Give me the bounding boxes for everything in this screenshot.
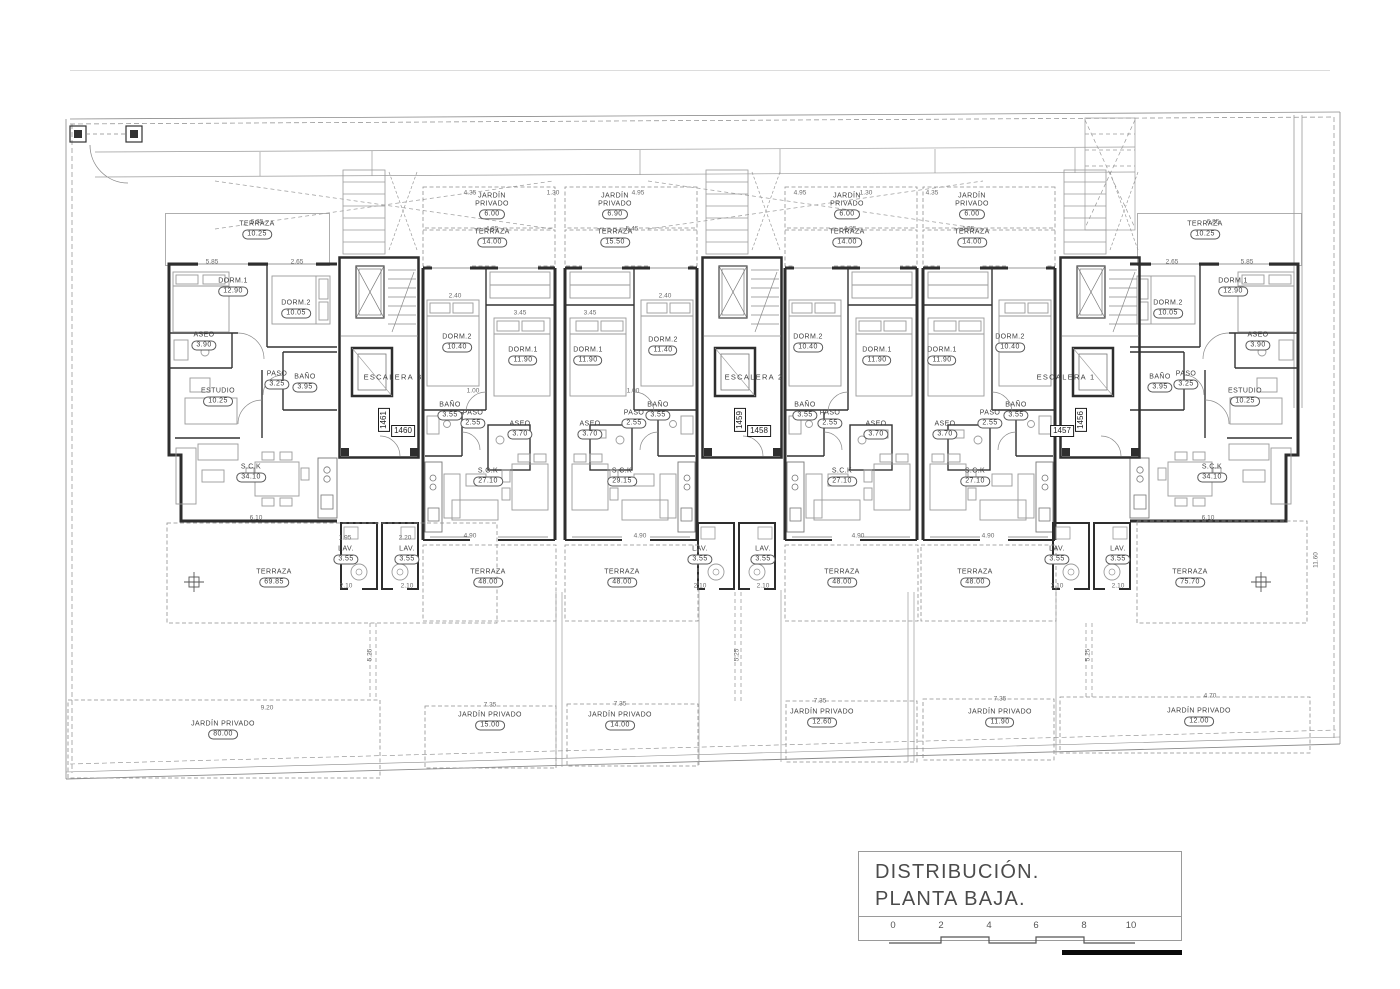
room-name: DORM.2 bbox=[793, 333, 823, 341]
room-name: PASO bbox=[463, 409, 484, 417]
room-label: BAÑO3.55 bbox=[1003, 401, 1028, 420]
room-area-value: 11.90 bbox=[574, 356, 603, 366]
dimension-text: 6.10 bbox=[250, 515, 263, 522]
room-area-value: 15.50 bbox=[600, 238, 630, 248]
scale-tick-6: 6 bbox=[1033, 920, 1038, 931]
dimension-text: 4.90 bbox=[464, 533, 477, 540]
room-name: BAÑO bbox=[1005, 401, 1026, 409]
dimension-text: 6.10 bbox=[1202, 515, 1215, 522]
room-label: BAÑO3.55 bbox=[437, 401, 462, 420]
room-label: ASEO3.70 bbox=[863, 420, 888, 439]
room-name: DORM.1 bbox=[862, 346, 892, 354]
room-name: TERRAZA bbox=[957, 568, 992, 576]
room-label: BAÑO3.95 bbox=[292, 373, 317, 392]
dimension-text: 3.45 bbox=[514, 310, 527, 317]
room-label: BAÑO3.55 bbox=[792, 401, 817, 420]
room-name: JARDÍN PRIVADO bbox=[968, 708, 1032, 716]
room-name: TERRAZA bbox=[597, 228, 632, 236]
room-name: JARDÍN PRIVADO bbox=[790, 708, 854, 716]
dimension-text: 5.25 bbox=[1085, 649, 1092, 662]
room-name: BAÑO bbox=[647, 401, 668, 409]
room-label: PASO3.25 bbox=[264, 370, 289, 389]
room-label: DORM.112.90 bbox=[1218, 277, 1248, 296]
room-area-value: 48.00 bbox=[827, 578, 857, 588]
room-area-value: 6.00 bbox=[834, 210, 859, 220]
room-label: ASEO3.70 bbox=[507, 420, 532, 439]
room-area-value: 2.55 bbox=[621, 419, 646, 429]
room-label: JARDÍN PRIVADO12.60 bbox=[790, 708, 854, 727]
room-area-value: 3.55 bbox=[394, 555, 419, 565]
room-name: ESTUDIO bbox=[1228, 387, 1262, 395]
room-name: PASO bbox=[267, 370, 288, 378]
dimension-text: 2.65 bbox=[291, 259, 304, 266]
room-name: BAÑO bbox=[439, 401, 460, 409]
dimension-text: 5.25 bbox=[367, 649, 374, 662]
room-name: JARDÍN PRIVADO bbox=[823, 192, 871, 208]
scale-tick-10: 10 bbox=[1126, 920, 1137, 931]
scale-tick-8: 8 bbox=[1081, 920, 1086, 931]
room-area-value: 3.55 bbox=[1044, 555, 1069, 565]
room-name: JARDÍN PRIVADO bbox=[458, 711, 522, 719]
room-name: S.C.K bbox=[241, 463, 261, 471]
room-name: S.C.K bbox=[832, 467, 852, 475]
scale-tick-4: 4 bbox=[986, 920, 991, 931]
room-name: S.C.K bbox=[612, 467, 632, 475]
room-label: TERRAZA10.25 bbox=[239, 220, 274, 239]
room-area-value: 3.55 bbox=[333, 555, 358, 565]
room-area-value: 3.70 bbox=[932, 430, 957, 440]
room-area-value: 6.00 bbox=[959, 210, 984, 220]
room-label: ASEO3.70 bbox=[932, 420, 957, 439]
room-area-value: 3.55 bbox=[750, 555, 775, 565]
room-name: JARDÍN PRIVADO bbox=[591, 192, 639, 208]
plot-number: 1461 bbox=[378, 408, 390, 432]
dimension-text: 7.35 bbox=[614, 701, 627, 708]
room-label: DORM.210.05 bbox=[281, 299, 311, 318]
room-area-value: 75.70 bbox=[1175, 578, 1205, 588]
room-name: DORM.1 bbox=[218, 277, 248, 285]
room-name: PASO bbox=[980, 409, 1001, 417]
room-name: LAV. bbox=[338, 545, 354, 553]
room-label: S.C.K34.10 bbox=[236, 463, 266, 482]
room-area-value: 14.00 bbox=[832, 238, 862, 248]
room-label: TERRAZA48.00 bbox=[824, 568, 859, 587]
room-name: ESTUDIO bbox=[201, 387, 235, 395]
room-area-value: 34.10 bbox=[236, 473, 266, 483]
room-area-value: 11.40 bbox=[649, 346, 678, 356]
dimension-text: 2.40 bbox=[449, 293, 462, 300]
dimension-text: 7.35 bbox=[814, 698, 827, 705]
room-label: DORM.210.40 bbox=[442, 333, 472, 352]
dimension-text: 9.20 bbox=[261, 705, 274, 712]
room-area-value: 27.10 bbox=[960, 477, 990, 487]
room-label: TERRAZA14.00 bbox=[829, 228, 864, 247]
room-label: LAV.3.55 bbox=[750, 545, 775, 564]
room-label: TERRAZA48.00 bbox=[604, 568, 639, 587]
room-name: JARDÍN PRIVADO bbox=[588, 711, 652, 719]
dimension-text: 2.10 bbox=[1112, 583, 1125, 590]
room-label: PASO2.55 bbox=[621, 409, 646, 428]
room-name: PASO bbox=[624, 409, 645, 417]
room-label: S.C.K27.10 bbox=[473, 467, 503, 486]
room-area-value: 11.90 bbox=[928, 356, 957, 366]
room-area-value: 2.55 bbox=[977, 419, 1002, 429]
room-name: S.C.K bbox=[965, 467, 985, 475]
floor-plan-page: TERRAZA10.25DORM.112.90DORM.210.05ASEO3.… bbox=[0, 0, 1400, 989]
room-area-value: 3.25 bbox=[1173, 380, 1198, 390]
drawing-title-line1: DISTRIBUCIÓN. bbox=[875, 859, 1165, 886]
room-label: ASEO3.70 bbox=[577, 420, 602, 439]
dimension-text: 2.10 bbox=[757, 583, 770, 590]
room-label: PASO2.55 bbox=[817, 409, 842, 428]
room-area-value: 34.10 bbox=[1197, 473, 1227, 483]
room-area-value: 10.25 bbox=[1230, 397, 1260, 407]
room-label: JARDÍN PRIVADO12.00 bbox=[1167, 707, 1231, 726]
room-name: TERRAZA bbox=[474, 228, 509, 236]
room-name: DORM.2 bbox=[1153, 299, 1183, 307]
room-name: ASEO bbox=[193, 331, 214, 339]
room-area-value: 11.90 bbox=[863, 356, 892, 366]
room-area-value: 3.55 bbox=[792, 411, 817, 421]
room-name: JARDÍN PRIVADO bbox=[191, 720, 255, 728]
scale-tick-0: 0 bbox=[890, 920, 895, 931]
room-area-value: 2.55 bbox=[817, 419, 842, 429]
room-label: JARDÍN PRIVADO15.00 bbox=[458, 711, 522, 730]
room-name: TERRAZA bbox=[1172, 568, 1207, 576]
room-area-value: 10.25 bbox=[203, 397, 233, 407]
room-label: ASEO3.90 bbox=[1245, 331, 1270, 350]
room-label: DORM.210.40 bbox=[995, 333, 1025, 352]
room-name: LAV. bbox=[1049, 545, 1065, 553]
room-label: PASO3.25 bbox=[1173, 370, 1198, 389]
dimension-text: 4.95 bbox=[794, 190, 807, 197]
scale-tick-2: 2 bbox=[938, 920, 943, 931]
room-area-value: 6.00 bbox=[479, 210, 504, 220]
room-label: TERRAZA75.70 bbox=[1172, 568, 1207, 587]
dimension-text: 1.95 bbox=[339, 535, 352, 542]
room-label: ASEO3.90 bbox=[191, 331, 216, 350]
dimension-text: 2.10 bbox=[340, 583, 353, 590]
room-label: ESTUDIO10.25 bbox=[201, 387, 235, 406]
room-area-value: 80.00 bbox=[208, 730, 238, 740]
plot-number: 1460 bbox=[391, 425, 415, 437]
room-area-value: 14.00 bbox=[957, 238, 987, 248]
room-label: LAV.3.55 bbox=[1044, 545, 1069, 564]
room-label: DORM.210.40 bbox=[793, 333, 823, 352]
room-name: DORM.1 bbox=[927, 346, 957, 354]
room-name: BAÑO bbox=[794, 401, 815, 409]
room-label: BAÑO3.55 bbox=[645, 401, 670, 420]
room-name: LAV. bbox=[1110, 545, 1126, 553]
room-name: JARDÍN PRIVADO bbox=[948, 192, 996, 208]
room-area-value: 48.00 bbox=[960, 578, 990, 588]
dimension-text: 1.00 bbox=[627, 388, 640, 395]
room-label: JARDÍN PRIVADO14.00 bbox=[588, 711, 652, 730]
room-area-value: 14.00 bbox=[477, 238, 507, 248]
room-area-value: 12.00 bbox=[1184, 717, 1214, 727]
room-name: DORM.2 bbox=[442, 333, 472, 341]
room-label: DORM.111.90 bbox=[927, 346, 957, 365]
room-name: DORM.1 bbox=[573, 346, 603, 354]
room-name: S.C.K bbox=[1202, 463, 1222, 471]
room-area-value: 3.70 bbox=[507, 430, 532, 440]
room-name: DORM.2 bbox=[281, 299, 311, 307]
room-area-value: 3.90 bbox=[1245, 341, 1270, 351]
room-name: TERRAZA bbox=[824, 568, 859, 576]
title-block: DISTRIBUCIÓN. PLANTA BAJA. 0 2 4 6 8 10 bbox=[858, 851, 1182, 941]
room-area-value: 3.55 bbox=[687, 555, 712, 565]
room-area-value: 27.10 bbox=[827, 477, 857, 487]
room-name: ASEO bbox=[579, 420, 600, 428]
room-name: TERRAZA bbox=[954, 228, 989, 236]
dimension-text: 2.10 bbox=[694, 583, 707, 590]
dimension-text: 5.25 bbox=[734, 649, 741, 662]
dimension-text: 2.10 bbox=[401, 583, 414, 590]
room-name: DORM.2 bbox=[995, 333, 1025, 341]
room-label: DORM.112.90 bbox=[218, 277, 248, 296]
stairwell-label: ESCALERA 2 bbox=[725, 373, 784, 382]
room-name: ASEO bbox=[865, 420, 886, 428]
room-label: JARDÍN PRIVADO6.00 bbox=[468, 192, 516, 219]
dimension-text: 11.60 bbox=[1313, 552, 1320, 568]
room-label: JARDÍN PRIVADO6.00 bbox=[823, 192, 871, 219]
room-label: LAV.3.55 bbox=[687, 545, 712, 564]
room-label: DORM.111.90 bbox=[508, 346, 538, 365]
dimension-text: 2.20 bbox=[399, 535, 412, 542]
dimension-text: 5.85 bbox=[206, 259, 219, 266]
room-name: ASEO bbox=[1247, 331, 1268, 339]
room-label: LAV.3.55 bbox=[1105, 545, 1130, 564]
room-name: DORM.1 bbox=[1218, 277, 1248, 285]
room-label: TERRAZA15.50 bbox=[597, 228, 632, 247]
room-area-value: 3.70 bbox=[577, 430, 602, 440]
room-name: LAV. bbox=[399, 545, 415, 553]
plot-number: 1459 bbox=[734, 408, 746, 432]
room-label: S.C.K29.15 bbox=[607, 467, 637, 486]
room-label: DORM.111.90 bbox=[573, 346, 603, 365]
room-label: JARDÍN PRIVADO6.90 bbox=[591, 192, 639, 219]
room-label: TERRAZA69.85 bbox=[256, 568, 291, 587]
drawing-title-line2: PLANTA BAJA. bbox=[875, 886, 1165, 913]
room-name: TERRAZA bbox=[256, 568, 291, 576]
room-area-value: 11.90 bbox=[509, 356, 538, 366]
dimension-text: 2.40 bbox=[659, 293, 672, 300]
dimension-text: 2.10 bbox=[1051, 583, 1064, 590]
room-area-value: 29.15 bbox=[607, 477, 637, 487]
room-area-value: 10.40 bbox=[793, 343, 823, 353]
room-area-value: 3.55 bbox=[645, 411, 670, 421]
dimension-text: 1.00 bbox=[467, 388, 480, 395]
room-label: JARDÍN PRIVADO11.90 bbox=[968, 708, 1032, 727]
room-name: PASO bbox=[820, 409, 841, 417]
dimension-text: 4.90 bbox=[852, 533, 865, 540]
room-label: PASO2.55 bbox=[977, 409, 1002, 428]
room-name: BAÑO bbox=[294, 373, 315, 381]
room-area-value: 6.90 bbox=[602, 210, 627, 220]
room-name: LAV. bbox=[755, 545, 771, 553]
room-area-value: 2.55 bbox=[460, 419, 485, 429]
room-label: TERRAZA48.00 bbox=[957, 568, 992, 587]
plot-number: 1458 bbox=[747, 425, 771, 437]
room-name: DORM.2 bbox=[648, 336, 678, 344]
room-area-value: 10.05 bbox=[281, 309, 311, 319]
dimension-text: 7.35 bbox=[484, 702, 497, 709]
title-block-accent-bar bbox=[1062, 950, 1182, 955]
room-name: PASO bbox=[1176, 370, 1197, 378]
room-label: DORM.210.05 bbox=[1153, 299, 1183, 318]
room-area-value: 10.40 bbox=[442, 343, 472, 353]
room-name: JARDÍN PRIVADO bbox=[468, 192, 516, 208]
room-label: S.C.K27.10 bbox=[827, 467, 857, 486]
room-area-value: 27.10 bbox=[473, 477, 503, 487]
room-area-value: 3.55 bbox=[1003, 411, 1028, 421]
room-area-value: 3.25 bbox=[264, 380, 289, 390]
room-area-value: 11.90 bbox=[986, 718, 1015, 728]
room-name: ASEO bbox=[509, 420, 530, 428]
room-area-value: 3.55 bbox=[437, 411, 462, 421]
dimension-text: 1.30 bbox=[547, 190, 560, 197]
room-area-value: 48.00 bbox=[473, 578, 503, 588]
room-label: S.C.K34.10 bbox=[1197, 463, 1227, 482]
room-name: TERRAZA bbox=[1187, 220, 1222, 228]
room-name: ASEO bbox=[934, 420, 955, 428]
room-label: DORM.111.90 bbox=[862, 346, 892, 365]
room-area-value: 10.40 bbox=[995, 343, 1025, 353]
room-area-value: 3.70 bbox=[863, 430, 888, 440]
room-name: TERRAZA bbox=[604, 568, 639, 576]
room-area-value: 3.90 bbox=[191, 341, 216, 351]
room-area-value: 12.60 bbox=[807, 718, 837, 728]
room-label: TERRAZA14.00 bbox=[474, 228, 509, 247]
dimension-text: 4.90 bbox=[634, 533, 647, 540]
plot-number: 1456 bbox=[1075, 408, 1087, 432]
room-area-value: 3.95 bbox=[1147, 383, 1172, 393]
room-name: LAV. bbox=[692, 545, 708, 553]
room-area-value: 48.00 bbox=[607, 578, 637, 588]
room-area-value: 14.00 bbox=[605, 721, 635, 731]
room-label: BAÑO3.95 bbox=[1147, 373, 1172, 392]
room-area-value: 12.90 bbox=[1218, 287, 1248, 297]
room-label: LAV.3.55 bbox=[333, 545, 358, 564]
room-name: TERRAZA bbox=[239, 220, 274, 228]
dimension-text: 3.45 bbox=[584, 310, 597, 317]
dimension-text: 4.90 bbox=[982, 533, 995, 540]
dimension-text: 7.35 bbox=[994, 696, 1007, 703]
dimension-text: 4.70 bbox=[1204, 693, 1217, 700]
drawing-title: DISTRIBUCIÓN. PLANTA BAJA. bbox=[859, 852, 1181, 916]
room-area-value: 15.00 bbox=[475, 721, 505, 731]
dimension-text: 5.85 bbox=[1241, 259, 1254, 266]
room-area-value: 3.55 bbox=[1105, 555, 1130, 565]
plot-number: 1457 bbox=[1050, 425, 1074, 437]
room-area-value: 3.95 bbox=[292, 383, 317, 393]
room-area-value: 10.25 bbox=[1190, 230, 1220, 240]
room-label: TERRAZA48.00 bbox=[470, 568, 505, 587]
scale-bar: 0 2 4 6 8 10 bbox=[859, 916, 1181, 952]
room-label: PASO2.55 bbox=[460, 409, 485, 428]
room-label: TERRAZA14.00 bbox=[954, 228, 989, 247]
room-label: DORM.211.40 bbox=[648, 336, 678, 355]
room-area-value: 69.85 bbox=[259, 578, 289, 588]
dimension-text: 4.35 bbox=[926, 190, 939, 197]
stairwell-label: ESCALERA 3 bbox=[364, 373, 423, 382]
room-name: S.C.K bbox=[478, 467, 498, 475]
room-area-value: 10.25 bbox=[242, 230, 272, 240]
room-label: TERRAZA10.25 bbox=[1187, 220, 1222, 239]
room-area-value: 10.05 bbox=[1153, 309, 1183, 319]
room-label: S.C.K27.10 bbox=[960, 467, 990, 486]
room-label: JARDÍN PRIVADO80.00 bbox=[191, 720, 255, 739]
stairwell-label: ESCALERA 1 bbox=[1037, 373, 1096, 382]
room-name: TERRAZA bbox=[829, 228, 864, 236]
room-name: JARDÍN PRIVADO bbox=[1167, 707, 1231, 715]
dimension-text: 2.65 bbox=[1166, 259, 1179, 266]
room-area-value: 12.90 bbox=[218, 287, 248, 297]
room-name: DORM.1 bbox=[508, 346, 538, 354]
room-name: BAÑO bbox=[1149, 373, 1170, 381]
room-label: LAV.3.55 bbox=[394, 545, 419, 564]
room-label: JARDÍN PRIVADO6.00 bbox=[948, 192, 996, 219]
plan-labels: TERRAZA10.25DORM.112.90DORM.210.05ASEO3.… bbox=[0, 0, 1400, 989]
room-label: ESTUDIO10.25 bbox=[1228, 387, 1262, 406]
room-name: TERRAZA bbox=[470, 568, 505, 576]
